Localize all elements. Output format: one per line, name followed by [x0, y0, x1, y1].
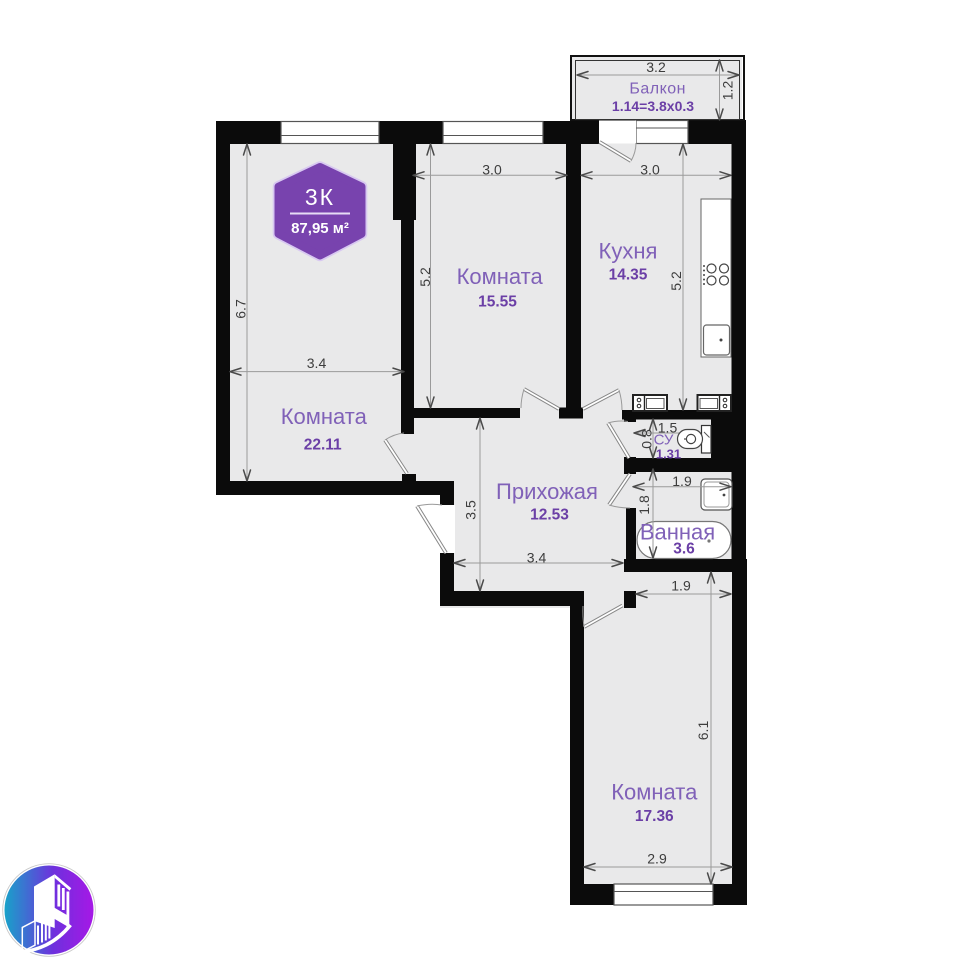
svg-text:3.2: 3.2 — [646, 59, 666, 75]
svg-text:Комната: Комната — [457, 264, 544, 289]
svg-text:Комната: Комната — [611, 780, 698, 805]
svg-text:3.0: 3.0 — [640, 162, 660, 178]
svg-text:1.9: 1.9 — [672, 473, 692, 489]
svg-text:3.0: 3.0 — [482, 162, 502, 178]
svg-text:5.2: 5.2 — [417, 267, 433, 287]
svg-text:Прихожая: Прихожая — [496, 479, 598, 504]
svg-text:1.2: 1.2 — [720, 81, 736, 101]
svg-text:6.1: 6.1 — [695, 721, 711, 741]
svg-text:6.7: 6.7 — [233, 299, 249, 319]
svg-text:12.53: 12.53 — [530, 507, 569, 524]
svg-text:14.35: 14.35 — [609, 267, 648, 284]
svg-text:15.55: 15.55 — [478, 294, 517, 311]
svg-text:3.5: 3.5 — [463, 500, 479, 520]
svg-text:22.11: 22.11 — [304, 437, 342, 454]
svg-text:1.8: 1.8 — [636, 495, 652, 515]
svg-text:17.36: 17.36 — [635, 808, 674, 825]
svg-text:1.31: 1.31 — [656, 446, 681, 461]
svg-text:Комната: Комната — [281, 404, 368, 429]
svg-text:5.2: 5.2 — [668, 271, 684, 291]
svg-text:87,95 м²: 87,95 м² — [291, 220, 349, 237]
svg-text:Кухня: Кухня — [599, 239, 658, 264]
svg-text:3.4: 3.4 — [307, 355, 327, 371]
svg-text:2.9: 2.9 — [647, 851, 667, 867]
svg-text:1.14=3.8x0.3: 1.14=3.8x0.3 — [612, 98, 694, 114]
svg-text:0.8: 0.8 — [639, 429, 655, 449]
svg-text:1.9: 1.9 — [671, 578, 691, 594]
svg-text:3.6: 3.6 — [673, 540, 695, 557]
svg-text:Балкон: Балкон — [629, 81, 686, 98]
svg-text:3К: 3К — [305, 184, 335, 210]
svg-text:3.4: 3.4 — [527, 550, 547, 566]
